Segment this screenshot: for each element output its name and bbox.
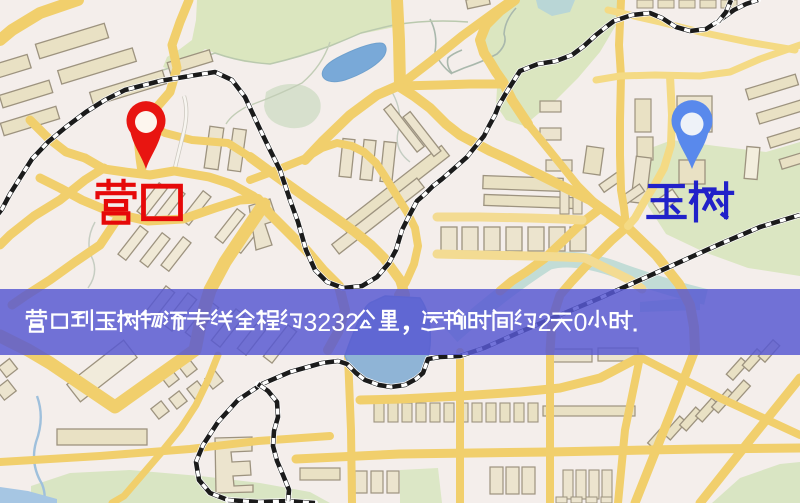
svg-text:0: 0 xyxy=(574,309,588,337)
svg-text:2: 2 xyxy=(538,309,552,337)
svg-text:3232: 3232 xyxy=(303,309,359,337)
